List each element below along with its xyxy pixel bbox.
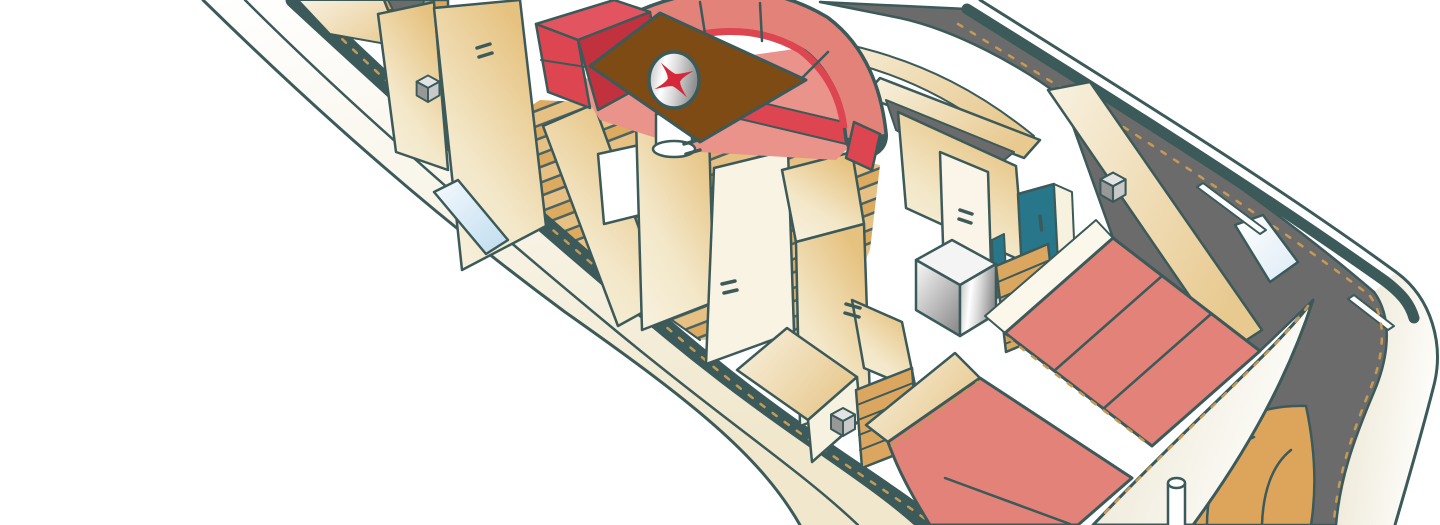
illustration-canvas [0,0,1440,525]
flag-pole [1168,478,1185,525]
yacht-interior-cutaway-illustration [0,0,1440,525]
hatch-cube-icon [831,408,855,436]
compass-rose-icon [649,52,699,108]
hatch-cube-icon [417,75,440,102]
hatch-cube-icon [1100,173,1125,202]
door-handle-icon [1040,216,1042,230]
